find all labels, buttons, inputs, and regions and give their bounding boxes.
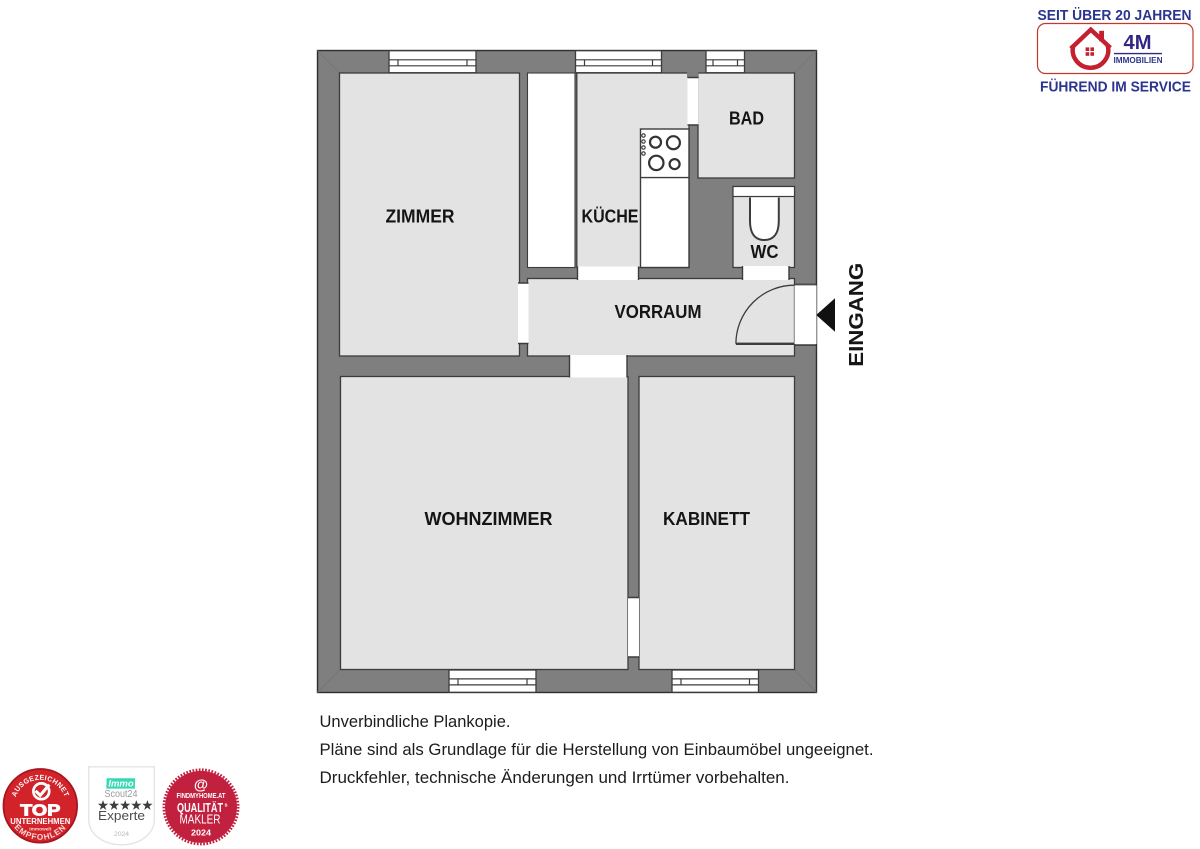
svg-text:4M: 4M	[1124, 32, 1152, 54]
svg-text:Experte: Experte	[98, 808, 145, 823]
svg-text:Scout24: Scout24	[105, 789, 138, 800]
svg-text:SEIT ÜBER 20 JAHREN: SEIT ÜBER 20 JAHREN	[1038, 7, 1192, 24]
svg-text:FINDMYHOME.AT: FINDMYHOME.AT	[177, 793, 227, 800]
svg-text:EINGANG: EINGANG	[846, 263, 868, 367]
svg-text:UNTERNEHMEN: UNTERNEHMEN	[10, 816, 70, 826]
svg-text:WOHNZIMMER: WOHNZIMMER	[425, 508, 553, 529]
svg-text:ZIMMER: ZIMMER	[386, 206, 455, 227]
svg-text:KABINETT: KABINETT	[663, 508, 751, 529]
svg-text:2024: 2024	[114, 831, 129, 838]
svg-text:BAD: BAD	[729, 108, 764, 129]
svg-text:Druckfehler, technische Änderu: Druckfehler, technische Änderungen und I…	[320, 769, 790, 787]
svg-text:Immo: Immo	[108, 779, 134, 790]
svg-text:WC: WC	[751, 242, 779, 262]
svg-text:s: s	[224, 803, 227, 809]
svg-text:IMMOBILIEN: IMMOBILIEN	[1114, 55, 1163, 65]
svg-text:Pläne sind als Grundlage für d: Pläne sind als Grundlage für die Herstel…	[320, 741, 874, 759]
svg-text:KÜCHE: KÜCHE	[582, 206, 639, 227]
svg-text:Unverbindliche Plankopie.: Unverbindliche Plankopie.	[320, 713, 511, 731]
svg-text:2024: 2024	[191, 828, 211, 838]
svg-text:FÜHREND IM SERVICE: FÜHREND IM SERVICE	[1040, 79, 1191, 96]
svg-text:immowelt: immowelt	[29, 827, 52, 833]
svg-text:VORRAUM: VORRAUM	[615, 301, 702, 322]
svg-text:MAKLER: MAKLER	[180, 812, 221, 827]
svg-text:@: @	[194, 778, 208, 794]
